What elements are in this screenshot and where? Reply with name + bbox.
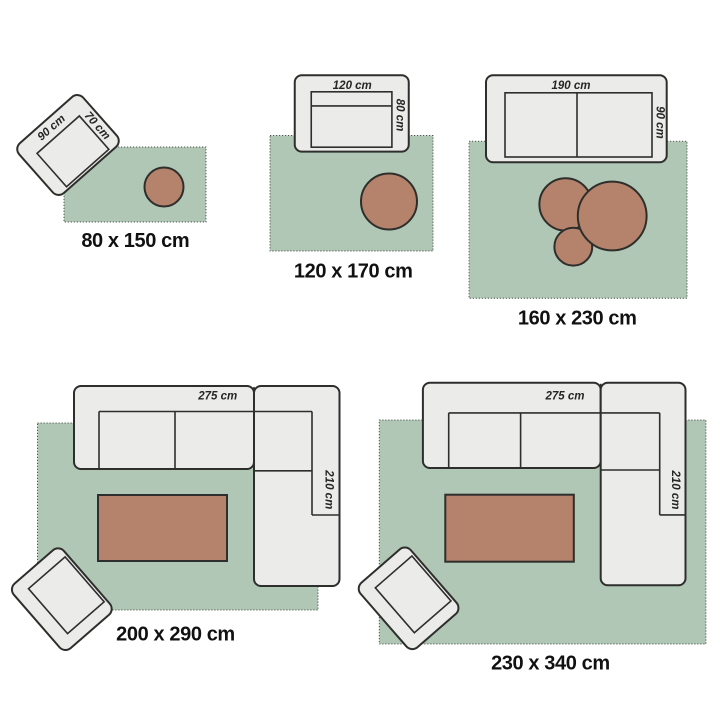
svg-text:200 x 290 cm: 200 x 290 cm (116, 623, 235, 645)
svg-text:90 cm: 90 cm (653, 106, 665, 139)
svg-text:275 cm: 275 cm (544, 391, 584, 403)
svg-text:190 cm: 190 cm (551, 80, 590, 92)
svg-text:80 x 150 cm: 80 x 150 cm (81, 230, 189, 252)
svg-text:275 cm: 275 cm (197, 391, 237, 403)
svg-text:80 cm: 80 cm (393, 99, 405, 132)
svg-text:210 cm: 210 cm (669, 469, 681, 509)
svg-text:120 x 170 cm: 120 x 170 cm (294, 260, 413, 282)
svg-text:230 x 340 cm: 230 x 340 cm (491, 653, 610, 675)
svg-text:120 cm: 120 cm (333, 80, 372, 92)
svg-text:160 x 230 cm: 160 x 230 cm (518, 307, 637, 329)
svg-text:210 cm: 210 cm (322, 469, 334, 509)
